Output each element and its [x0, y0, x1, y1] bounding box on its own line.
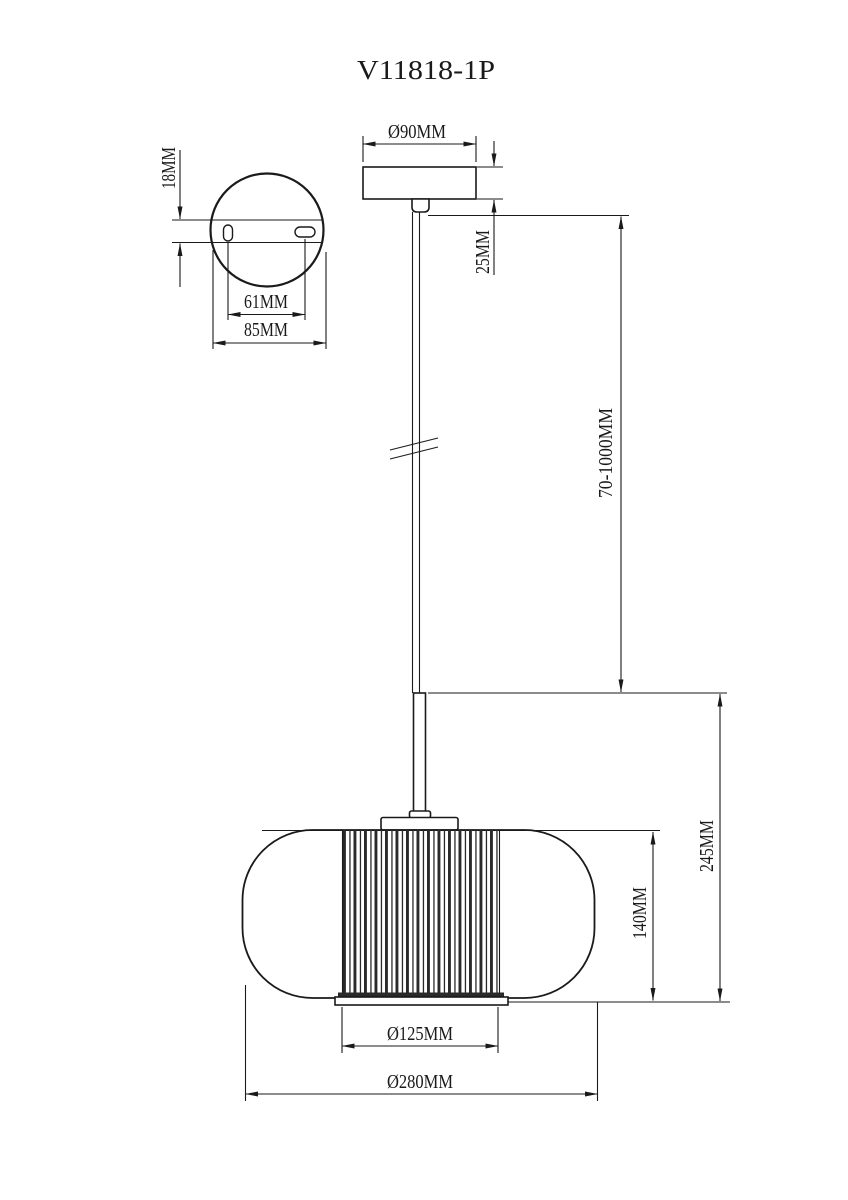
dim-label-canopy-diameter: Ø90MM [388, 121, 446, 143]
technical-drawing-page: V11818-1P 18MM 61MM 85MM [0, 0, 848, 1200]
lamp-shade [243, 830, 661, 1005]
canopy-stem-connector [412, 199, 429, 212]
dim-label-canopy-height: 25MM [472, 230, 494, 274]
dim-rod-length: 70-1000MM [428, 216, 727, 694]
canopy-body [363, 167, 476, 199]
rod-break-symbol [390, 438, 438, 459]
break-line [390, 438, 438, 450]
dim-label-plate-width: 85MM [244, 319, 288, 341]
lower-stem [381, 693, 458, 830]
ceiling-canopy: Ø90MM 25MM [363, 121, 503, 275]
suspension-rod: 70-1000MM [390, 212, 727, 693]
dim-label-diffuser-diameter: Ø125MM [387, 1023, 453, 1045]
dim-plate-thickness: 18MM [158, 147, 180, 287]
shade-mount-block [381, 818, 458, 831]
dim-label-shade-diameter: Ø280MM [387, 1071, 453, 1093]
dim-label-overall-height: 245MM [696, 820, 718, 872]
dim-label-diffuser-height: 140MM [629, 887, 651, 939]
stem-body [414, 693, 426, 812]
mounting-plate-detail-view: 18MM 61MM 85MM [158, 147, 326, 349]
dim-canopy-diameter: Ø90MM [363, 121, 476, 162]
dim-canopy-height: 25MM [472, 141, 503, 275]
dim-label-rod-length: 70-1000MM [595, 408, 617, 498]
dim-label-hole-spacing: 61MM [244, 291, 288, 313]
dim-overall-height: 245MM [696, 694, 720, 1001]
break-line [390, 447, 438, 459]
diffuser-base-plate [335, 997, 508, 1005]
drawing-title: V11818-1P [357, 55, 495, 85]
dim-label-plate-thickness: 18MM [158, 147, 180, 189]
keyhole-slot [224, 225, 233, 241]
ribbed-diffuser [343, 830, 500, 997]
dim-diffuser-diameter: Ø125MM [342, 1007, 498, 1053]
screw-slot [295, 227, 315, 237]
pendant-lamp-drawing: V11818-1P 18MM 61MM 85MM [0, 0, 848, 1200]
